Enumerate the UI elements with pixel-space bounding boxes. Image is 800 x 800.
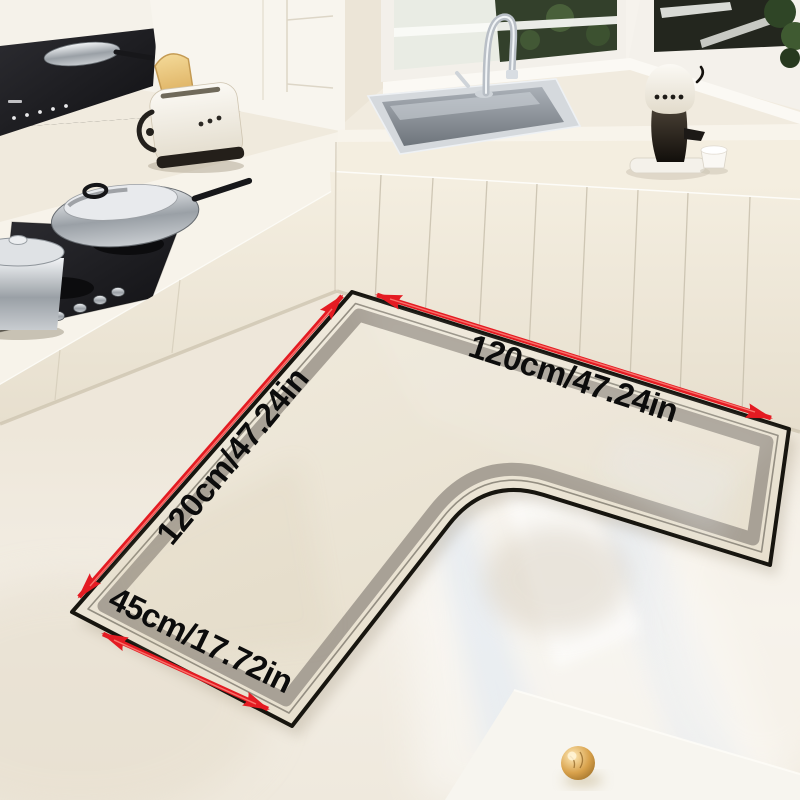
- leaf-icon: [780, 48, 800, 68]
- pot-lid-knob: [9, 236, 27, 245]
- leaf-icon: [520, 30, 540, 50]
- pot-body: [0, 258, 64, 330]
- stock-pot: [0, 236, 64, 341]
- cup-shadow: [700, 168, 728, 175]
- ornament-highlight: [568, 752, 577, 761]
- coffee-cup: [700, 146, 728, 175]
- ornament-body: [561, 746, 595, 780]
- machine-group-head: [651, 110, 687, 162]
- kitchen-mat-product-photo: 120cm/47.24in 120cm/47.24in 45cm/17.72in: [0, 0, 800, 800]
- machine-dome: [645, 64, 695, 114]
- toaster-knob: [146, 128, 154, 136]
- scene-canvas: 120cm/47.24in 120cm/47.24in 45cm/17.72in: [0, 0, 800, 800]
- floor-shadow: [484, 526, 628, 634]
- cabinet-corner-line: [335, 142, 336, 291]
- faucet-spout: [506, 70, 518, 79]
- leaf-icon: [586, 22, 610, 46]
- cup-rim: [701, 146, 727, 154]
